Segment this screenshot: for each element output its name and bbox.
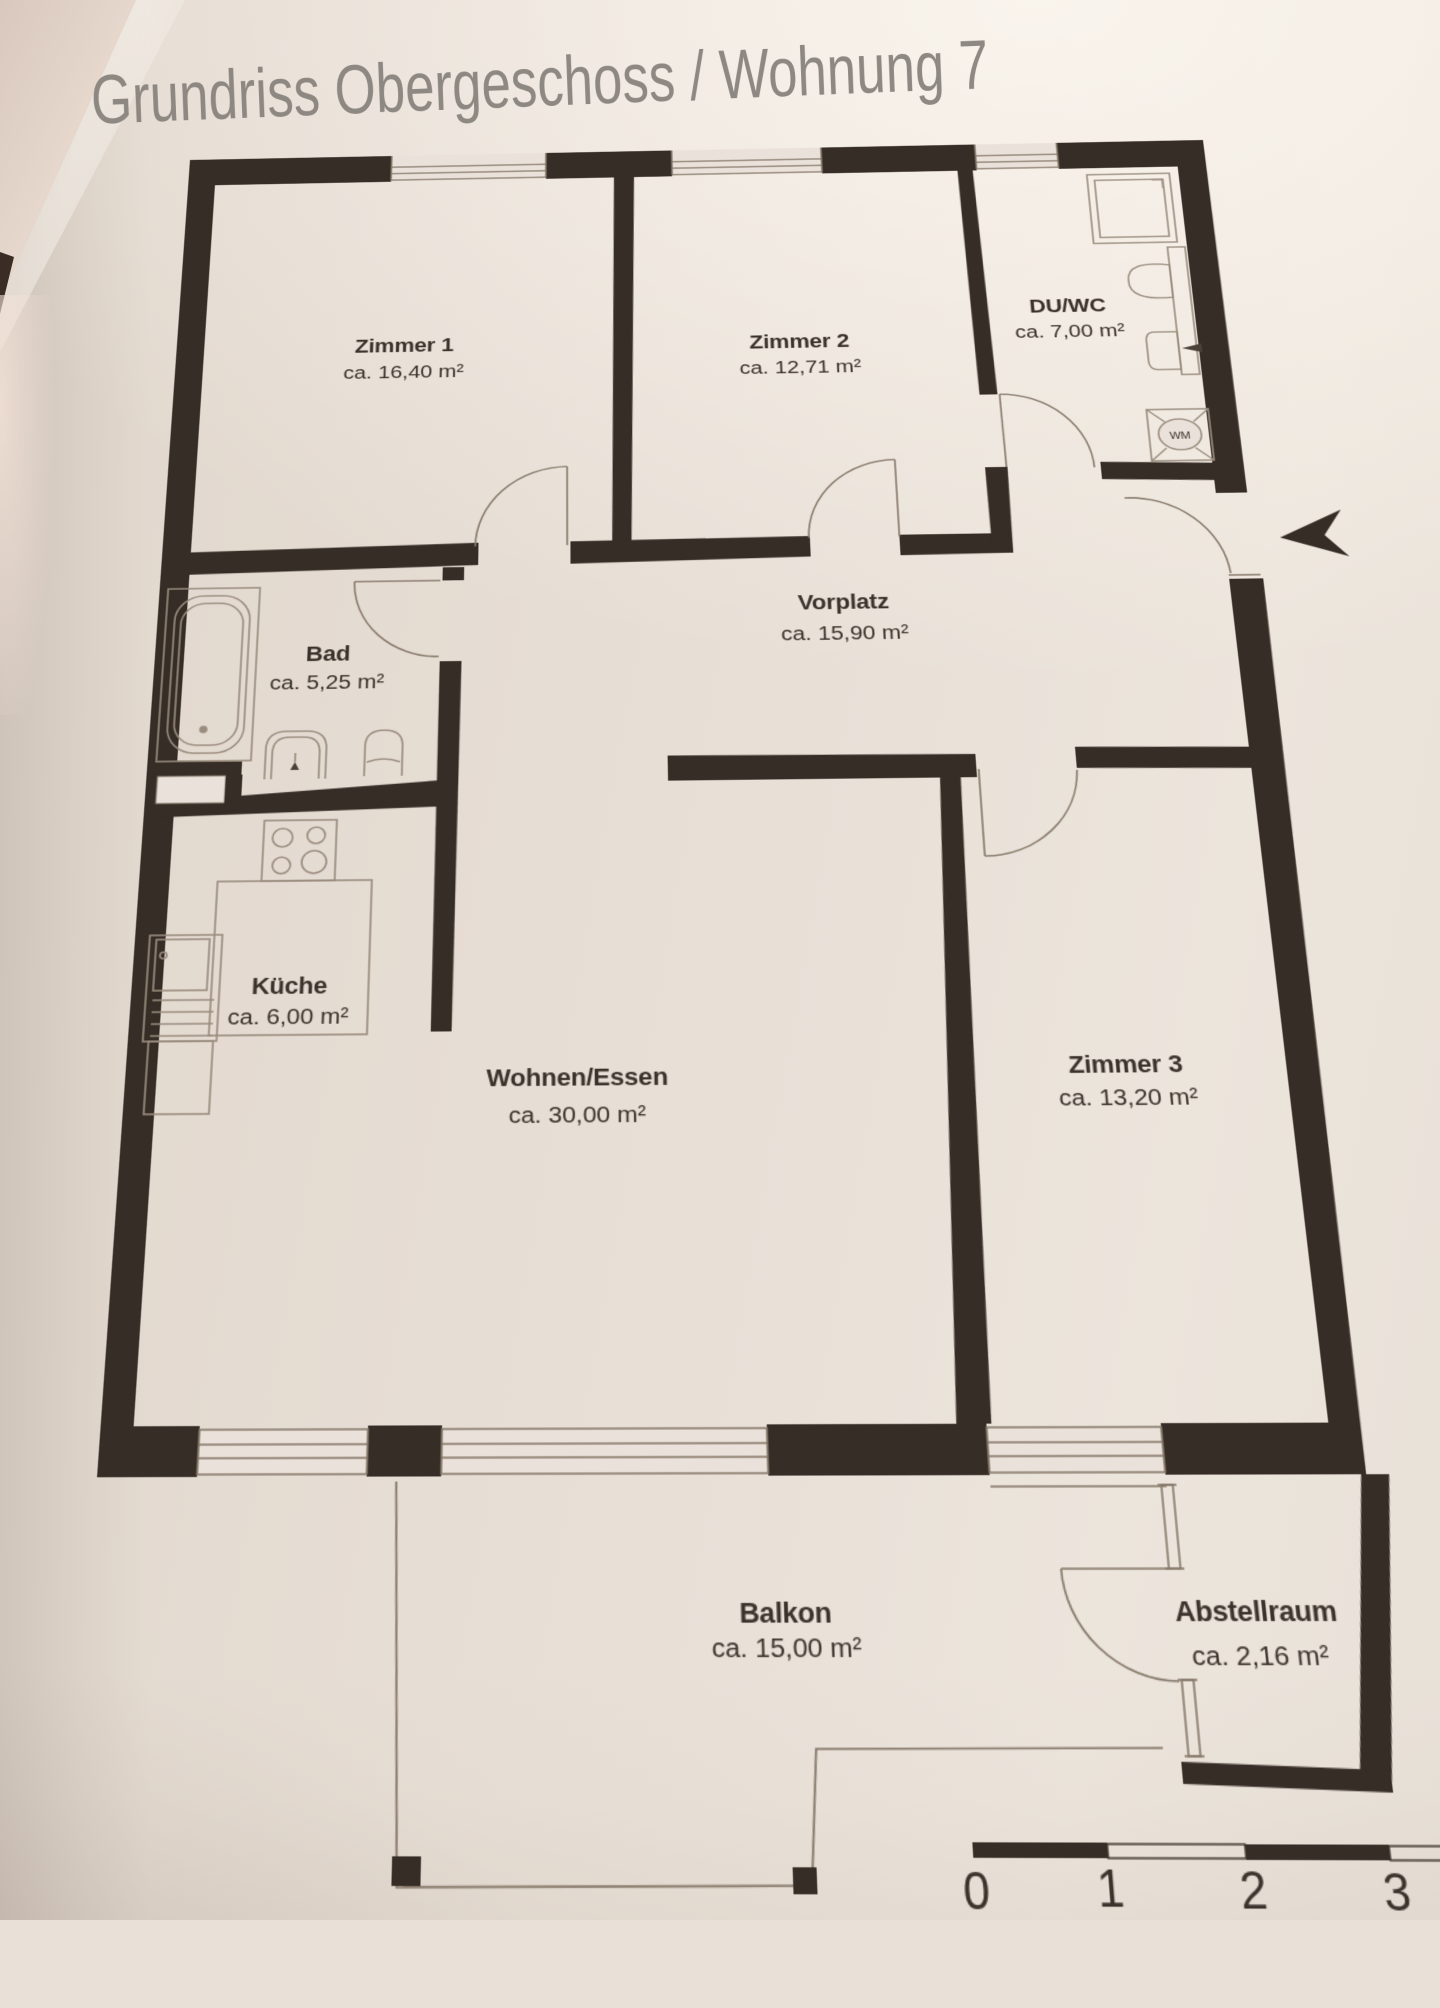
svg-text:2: 2	[1237, 1862, 1270, 1920]
svg-text:ca. 6,00 m²: ca. 6,00 m²	[227, 1003, 349, 1030]
svg-text:Zimmer 1: Zimmer 1	[354, 335, 454, 358]
svg-text:Balkon: Balkon	[739, 1597, 832, 1630]
svg-text:Wohnen/Essen: Wohnen/Essen	[486, 1064, 668, 1093]
svg-text:Vorplatz: Vorplatz	[797, 590, 890, 615]
svg-text:ca. 15,00 m²: ca. 15,00 m²	[711, 1632, 862, 1663]
svg-text:Küche: Küche	[251, 973, 328, 1000]
svg-text:ca. 2,16 m²: ca. 2,16 m²	[1190, 1640, 1330, 1672]
svg-text:ca. 5,25 m²: ca. 5,25 m²	[269, 670, 384, 694]
svg-text:ca. 30,00 m²: ca. 30,00 m²	[508, 1101, 646, 1129]
svg-text:WM: WM	[1169, 431, 1191, 442]
svg-text:Zimmer 2: Zimmer 2	[749, 330, 850, 353]
svg-text:Abstellraum: Abstellraum	[1173, 1596, 1338, 1629]
svg-text:ca. 13,20 m²: ca. 13,20 m²	[1058, 1083, 1200, 1111]
svg-text:ca. 12,71 m²: ca. 12,71 m²	[739, 355, 862, 378]
svg-text:1: 1	[1095, 1860, 1126, 1918]
svg-text:DU/WC: DU/WC	[1028, 295, 1107, 318]
svg-text:ca. 15,90 m²: ca. 15,90 m²	[780, 620, 909, 644]
svg-text:ca. 16,40 m²: ca. 16,40 m²	[343, 360, 464, 383]
svg-text:0: 0	[962, 1863, 992, 1921]
svg-text:Bad: Bad	[305, 642, 350, 666]
svg-text:Zimmer 3: Zimmer 3	[1067, 1051, 1184, 1079]
svg-text:ca. 7,00 m²: ca. 7,00 m²	[1014, 319, 1126, 341]
svg-text:3: 3	[1380, 1864, 1414, 1922]
